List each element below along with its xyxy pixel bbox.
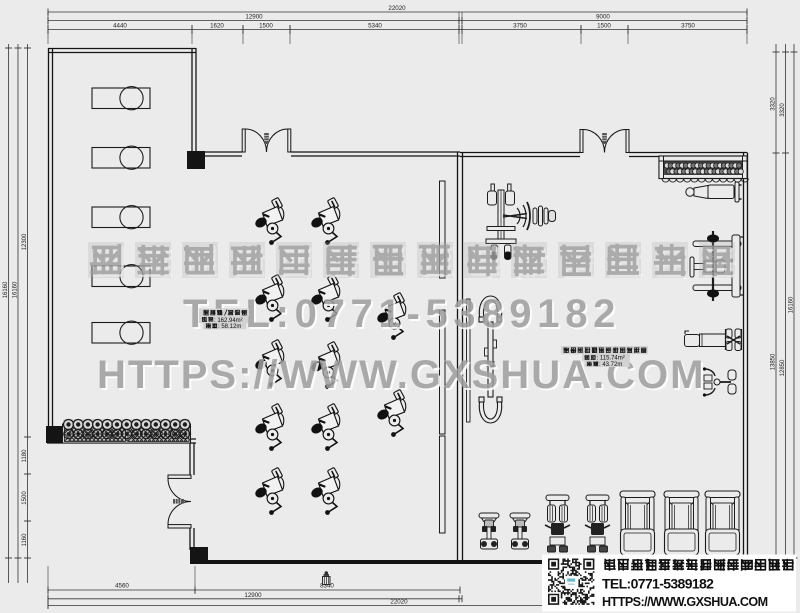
svg-text:1500: 1500 [597,23,611,30]
svg-text:4560: 4560 [115,583,129,590]
svg-text:: 162.94m²: : 162.94m² [214,318,243,324]
svg-text:4440: 4440 [113,23,127,30]
svg-text:: 43.72m: : 43.72m [599,362,622,368]
svg-text:12900: 12900 [245,14,263,21]
svg-text:22020: 22020 [388,5,406,12]
svg-text:16160: 16160 [13,281,19,298]
svg-text:TEL:0771-5389182: TEL:0771-5389182 [602,576,714,592]
svg-text:: 58.12m: : 58.12m [218,324,241,330]
svg-text:13850: 13850 [771,353,777,370]
svg-text:1180: 1180 [22,449,28,463]
svg-text:1620: 1620 [210,23,224,30]
svg-text:1500: 1500 [22,491,28,505]
svg-text:1500: 1500 [259,23,273,30]
svg-text:16160: 16160 [3,281,9,298]
svg-text:16160: 16160 [789,296,795,313]
svg-text:12900: 12900 [244,592,262,599]
svg-text:22020: 22020 [390,599,408,606]
svg-text:5340: 5340 [368,23,382,30]
svg-text:12300: 12300 [22,233,28,250]
svg-text:1160: 1160 [22,533,28,547]
svg-text:3750: 3750 [513,23,527,30]
svg-text:3320: 3320 [780,103,786,117]
svg-text:HTTPS://WWW.GXSHUA.COM: HTTPS://WWW.GXSHUA.COM [602,595,768,609]
svg-text:12850: 12850 [780,359,786,376]
svg-text:: 115.74m²: : 115.74m² [597,356,625,362]
svg-text:3750: 3750 [681,23,695,30]
svg-text:9000: 9000 [596,14,610,21]
svg-text:3320: 3320 [771,97,777,111]
